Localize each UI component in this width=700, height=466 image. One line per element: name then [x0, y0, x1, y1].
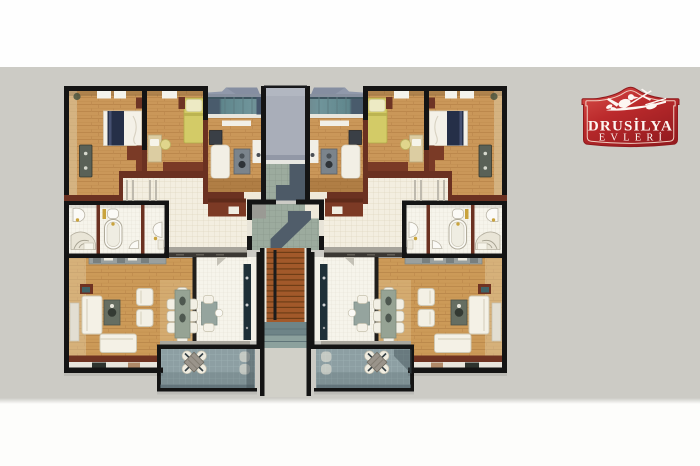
- svg-text:EVLERİ: EVLERİ: [599, 132, 668, 144]
